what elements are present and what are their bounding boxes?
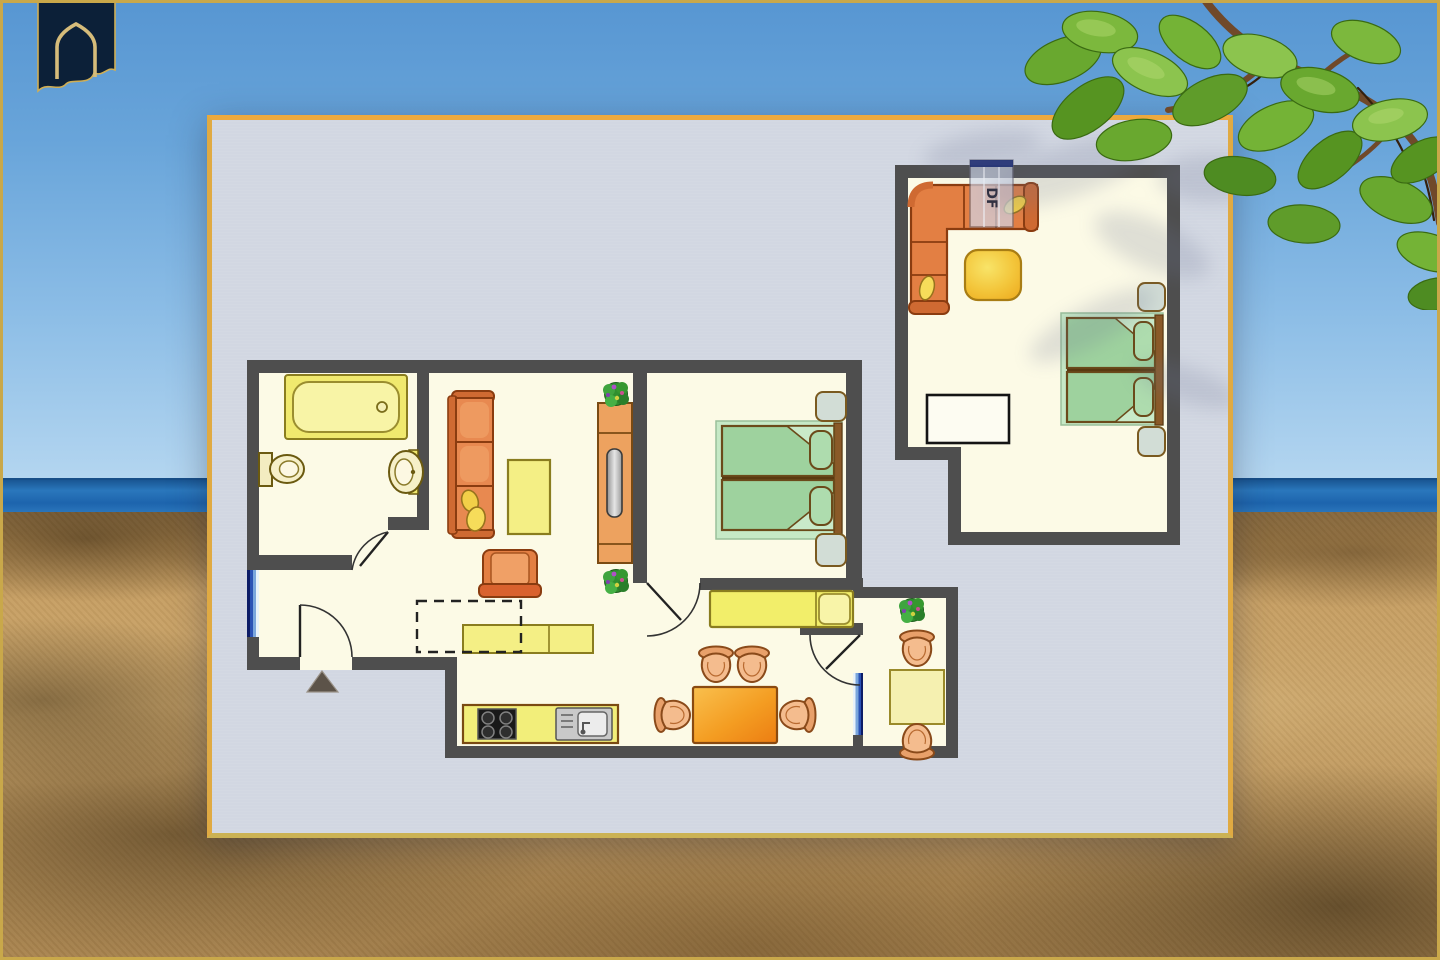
window-left bbox=[247, 570, 259, 637]
double-bed bbox=[716, 421, 842, 539]
toilet bbox=[259, 453, 304, 486]
floor-plan-drawing: DF bbox=[212, 120, 1228, 833]
coffee-table bbox=[508, 460, 550, 534]
studio-desk bbox=[927, 395, 1009, 443]
studio-coffee-table bbox=[965, 250, 1021, 300]
bathtub bbox=[285, 375, 407, 439]
plant-icon bbox=[603, 569, 629, 594]
shelf-unit bbox=[598, 403, 632, 563]
logo-banner bbox=[38, 0, 115, 91]
annex-table bbox=[890, 670, 944, 724]
plant-icon bbox=[603, 382, 629, 407]
armchair bbox=[479, 550, 541, 597]
washbasin bbox=[389, 450, 423, 494]
plant-icon bbox=[899, 598, 925, 623]
nightstand bbox=[816, 392, 846, 421]
floor-plan-poster: DF bbox=[207, 115, 1233, 838]
entrance-arrow-icon bbox=[307, 671, 338, 692]
single-bed bbox=[710, 591, 853, 627]
dining-table bbox=[693, 687, 777, 743]
nightstand bbox=[816, 534, 846, 566]
kitchen-counter bbox=[463, 705, 618, 743]
site-logo bbox=[30, 0, 130, 108]
sink-icon bbox=[556, 708, 612, 740]
sideboard bbox=[463, 625, 593, 653]
window-dining bbox=[853, 673, 863, 735]
stove-icon bbox=[478, 709, 516, 739]
nightstand bbox=[1138, 427, 1165, 456]
sofa bbox=[448, 391, 494, 538]
